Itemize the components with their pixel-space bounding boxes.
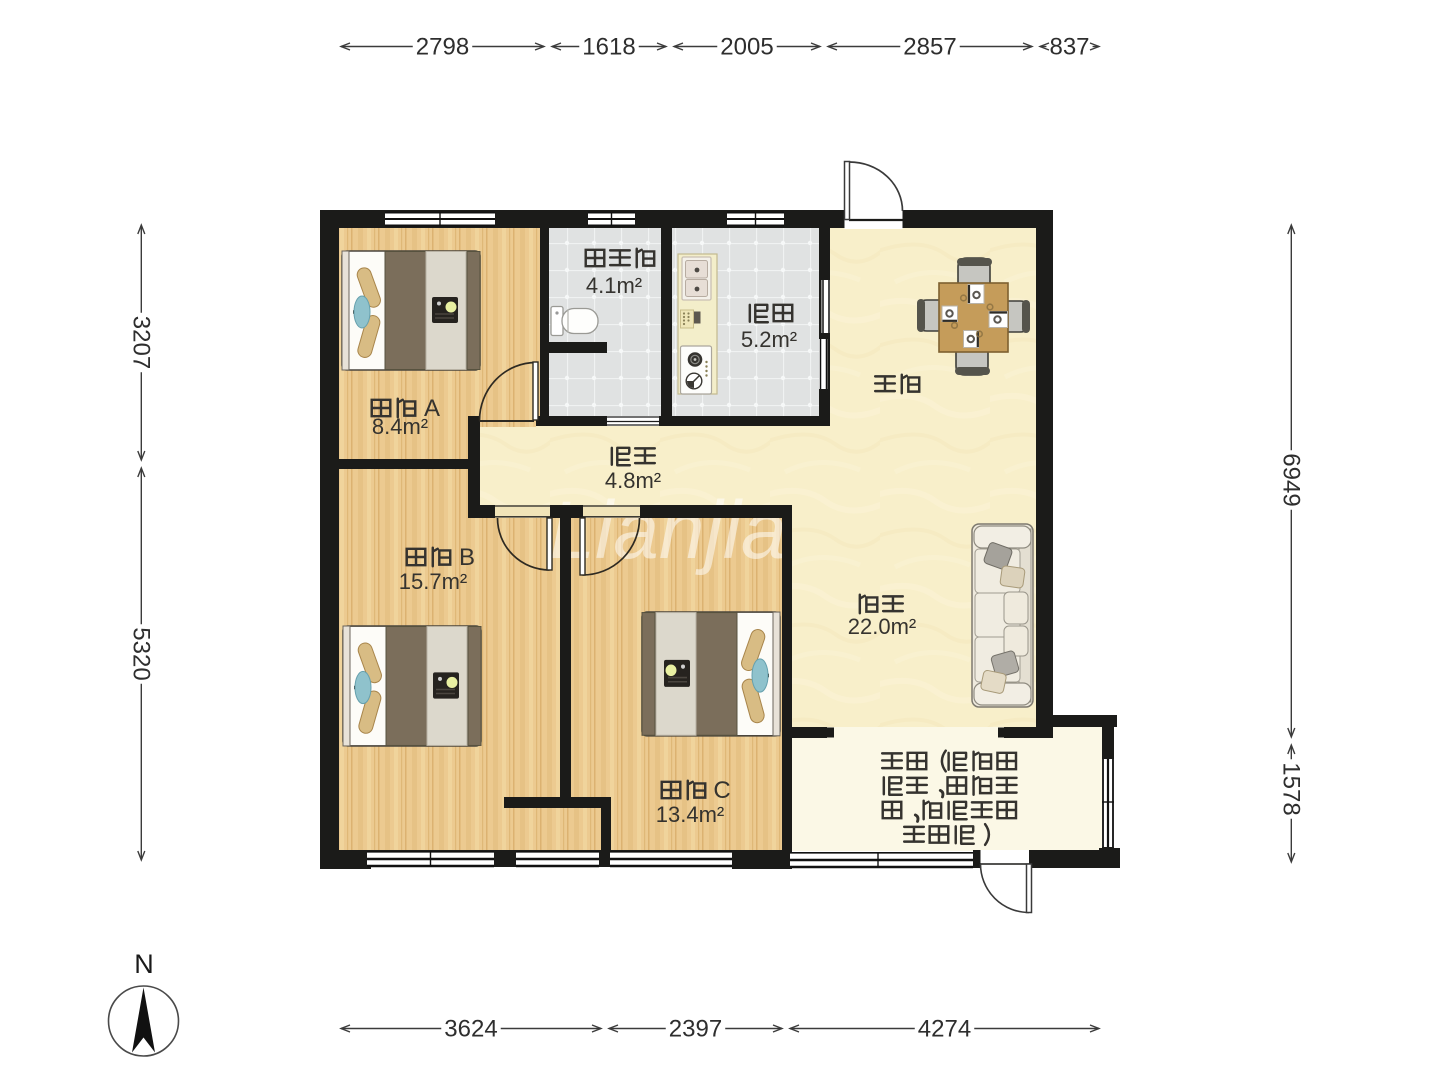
svg-text:5320: 5320 (127, 627, 154, 680)
svg-text:N: N (134, 949, 154, 979)
svg-text:5.2m²: 5.2m² (741, 327, 797, 352)
svg-text:C: C (713, 777, 730, 804)
svg-text:1618: 1618 (582, 34, 635, 61)
svg-text:13.4m²: 13.4m² (656, 802, 724, 827)
svg-text:4.1m²: 4.1m² (586, 273, 642, 298)
svg-text:B: B (459, 544, 475, 571)
svg-text:6949: 6949 (1277, 453, 1304, 506)
svg-text:22.0m²: 22.0m² (848, 614, 916, 639)
svg-text:2857: 2857 (903, 34, 956, 61)
svg-text:4274: 4274 (918, 1016, 971, 1043)
svg-text:3207: 3207 (127, 316, 154, 369)
svg-text:4.8m²: 4.8m² (605, 468, 661, 493)
svg-text:8.4m²: 8.4m² (372, 414, 428, 439)
svg-text:15.7m²: 15.7m² (399, 569, 467, 594)
svg-text:2397: 2397 (669, 1016, 722, 1043)
svg-text:1578: 1578 (1277, 762, 1304, 815)
svg-text:837: 837 (1049, 34, 1089, 61)
svg-text:2005: 2005 (720, 34, 773, 61)
svg-text:2798: 2798 (416, 34, 469, 61)
svg-text:3624: 3624 (444, 1016, 497, 1043)
